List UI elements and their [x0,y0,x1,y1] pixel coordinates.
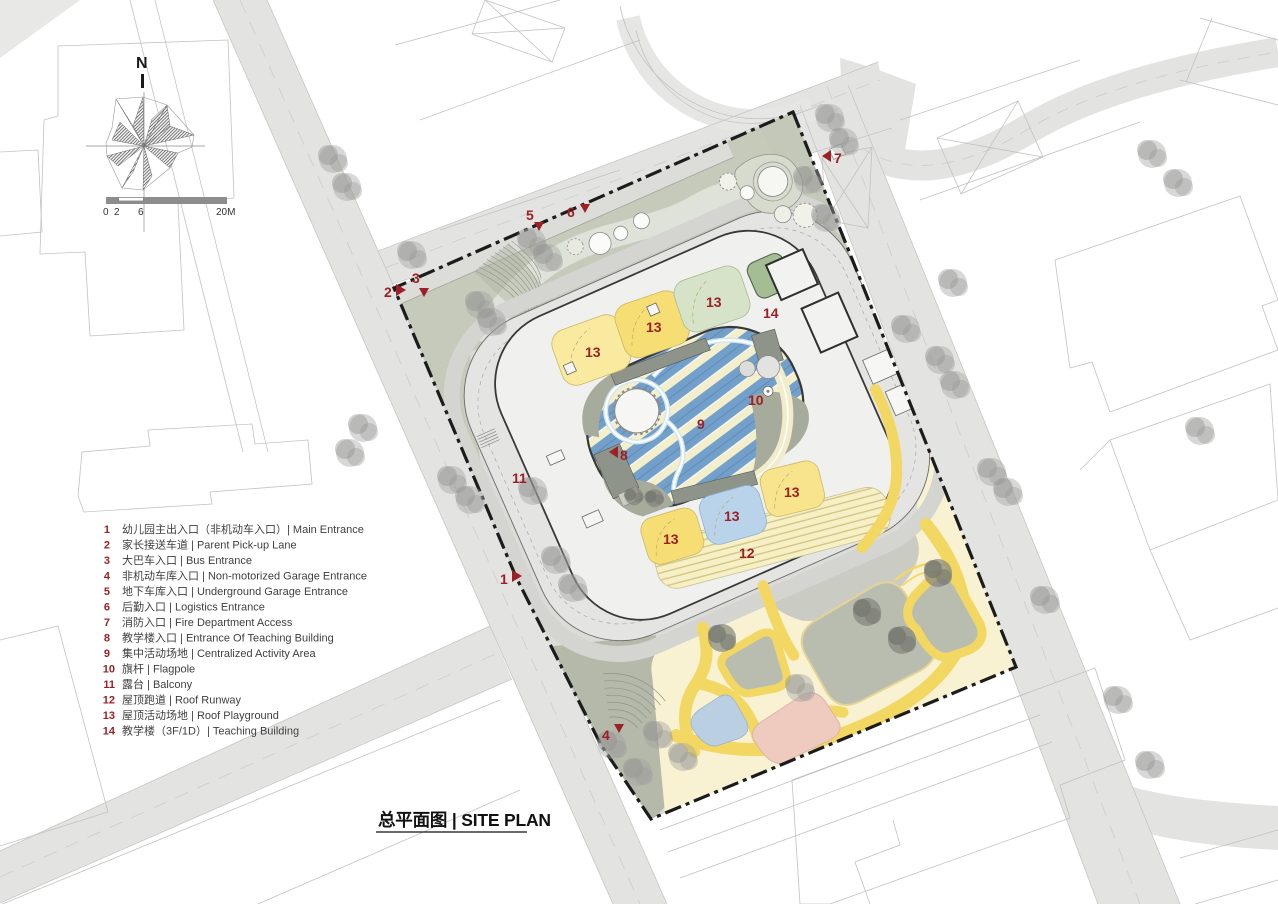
svg-text:2: 2 [384,284,392,300]
svg-text:屋顶跑道 | Roof Runway: 屋顶跑道 | Roof Runway [122,693,242,707]
svg-text:幼儿园主出入口（非机动车入口）| Main Entrance: 幼儿园主出入口（非机动车入口）| Main Entrance [122,522,364,536]
svg-text:总平面图 | SITE PLAN: 总平面图 | SITE PLAN [378,810,551,830]
svg-text:14: 14 [763,305,779,321]
svg-text:13: 13 [724,508,740,524]
svg-text:2: 2 [104,540,110,552]
svg-text:10: 10 [103,664,115,676]
svg-text:0: 0 [103,207,109,218]
svg-text:7: 7 [104,617,110,629]
svg-text:3: 3 [104,555,110,567]
svg-text:8: 8 [620,447,628,463]
svg-text:屋顶活动场地 | Roof Playground: 屋顶活动场地 | Roof Playground [122,708,279,722]
svg-text:12: 12 [739,545,755,561]
svg-text:9: 9 [104,648,110,660]
svg-text:13: 13 [585,344,601,360]
svg-text:集中活动场地 | Centralized Activity: 集中活动场地 | Centralized Activity Area [122,646,316,660]
svg-text:N: N [136,55,148,72]
svg-text:2: 2 [114,207,120,218]
svg-text:5: 5 [526,207,534,223]
svg-text:1: 1 [500,571,508,587]
svg-text:20M: 20M [216,207,235,218]
svg-text:6: 6 [104,602,110,614]
svg-text:7: 7 [834,150,842,166]
svg-text:12: 12 [103,695,115,707]
svg-text:11: 11 [103,679,115,691]
svg-text:消防入口 | Fire Department Access: 消防入口 | Fire Department Access [122,615,293,629]
svg-text:旗杆 | Flagpole: 旗杆 | Flagpole [122,662,195,676]
svg-text:10: 10 [748,392,764,408]
svg-text:大巴车入口 | Bus Entrance: 大巴车入口 | Bus Entrance [122,553,252,567]
svg-text:家长接送车道 | Parent Pick-up Lane: 家长接送车道 | Parent Pick-up Lane [122,538,297,552]
svg-text:9: 9 [697,416,705,432]
svg-text:教学楼入口 | Entrance Of Teaching B: 教学楼入口 | Entrance Of Teaching Building [122,631,334,645]
svg-text:8: 8 [104,633,110,645]
svg-text:13: 13 [784,484,800,500]
svg-text:地下车库入口 | Underground Garage En: 地下车库入口 | Underground Garage Entrance [122,584,348,598]
svg-text:5: 5 [104,586,110,598]
svg-text:14: 14 [103,726,116,738]
svg-text:后勤入口 | Logistics Entrance: 后勤入口 | Logistics Entrance [122,601,265,614]
svg-text:6: 6 [138,207,144,218]
svg-text:教学楼（3F/1D）| Teaching Building: 教学楼（3F/1D）| Teaching Building [122,724,299,738]
svg-text:13: 13 [646,319,662,335]
svg-text:1: 1 [104,524,110,536]
svg-text:13: 13 [706,294,722,310]
svg-text:11: 11 [512,470,527,486]
svg-text:4: 4 [602,727,610,743]
svg-text:露台 | Balcony: 露台 | Balcony [122,677,193,691]
svg-text:6: 6 [567,204,575,220]
svg-text:3: 3 [412,270,420,286]
svg-text:4: 4 [104,571,111,583]
svg-text:13: 13 [103,710,115,722]
svg-text:非机动车库入口 | Non-motorized Garage: 非机动车库入口 | Non-motorized Garage Entrance [122,569,367,583]
svg-text:13: 13 [663,531,679,547]
